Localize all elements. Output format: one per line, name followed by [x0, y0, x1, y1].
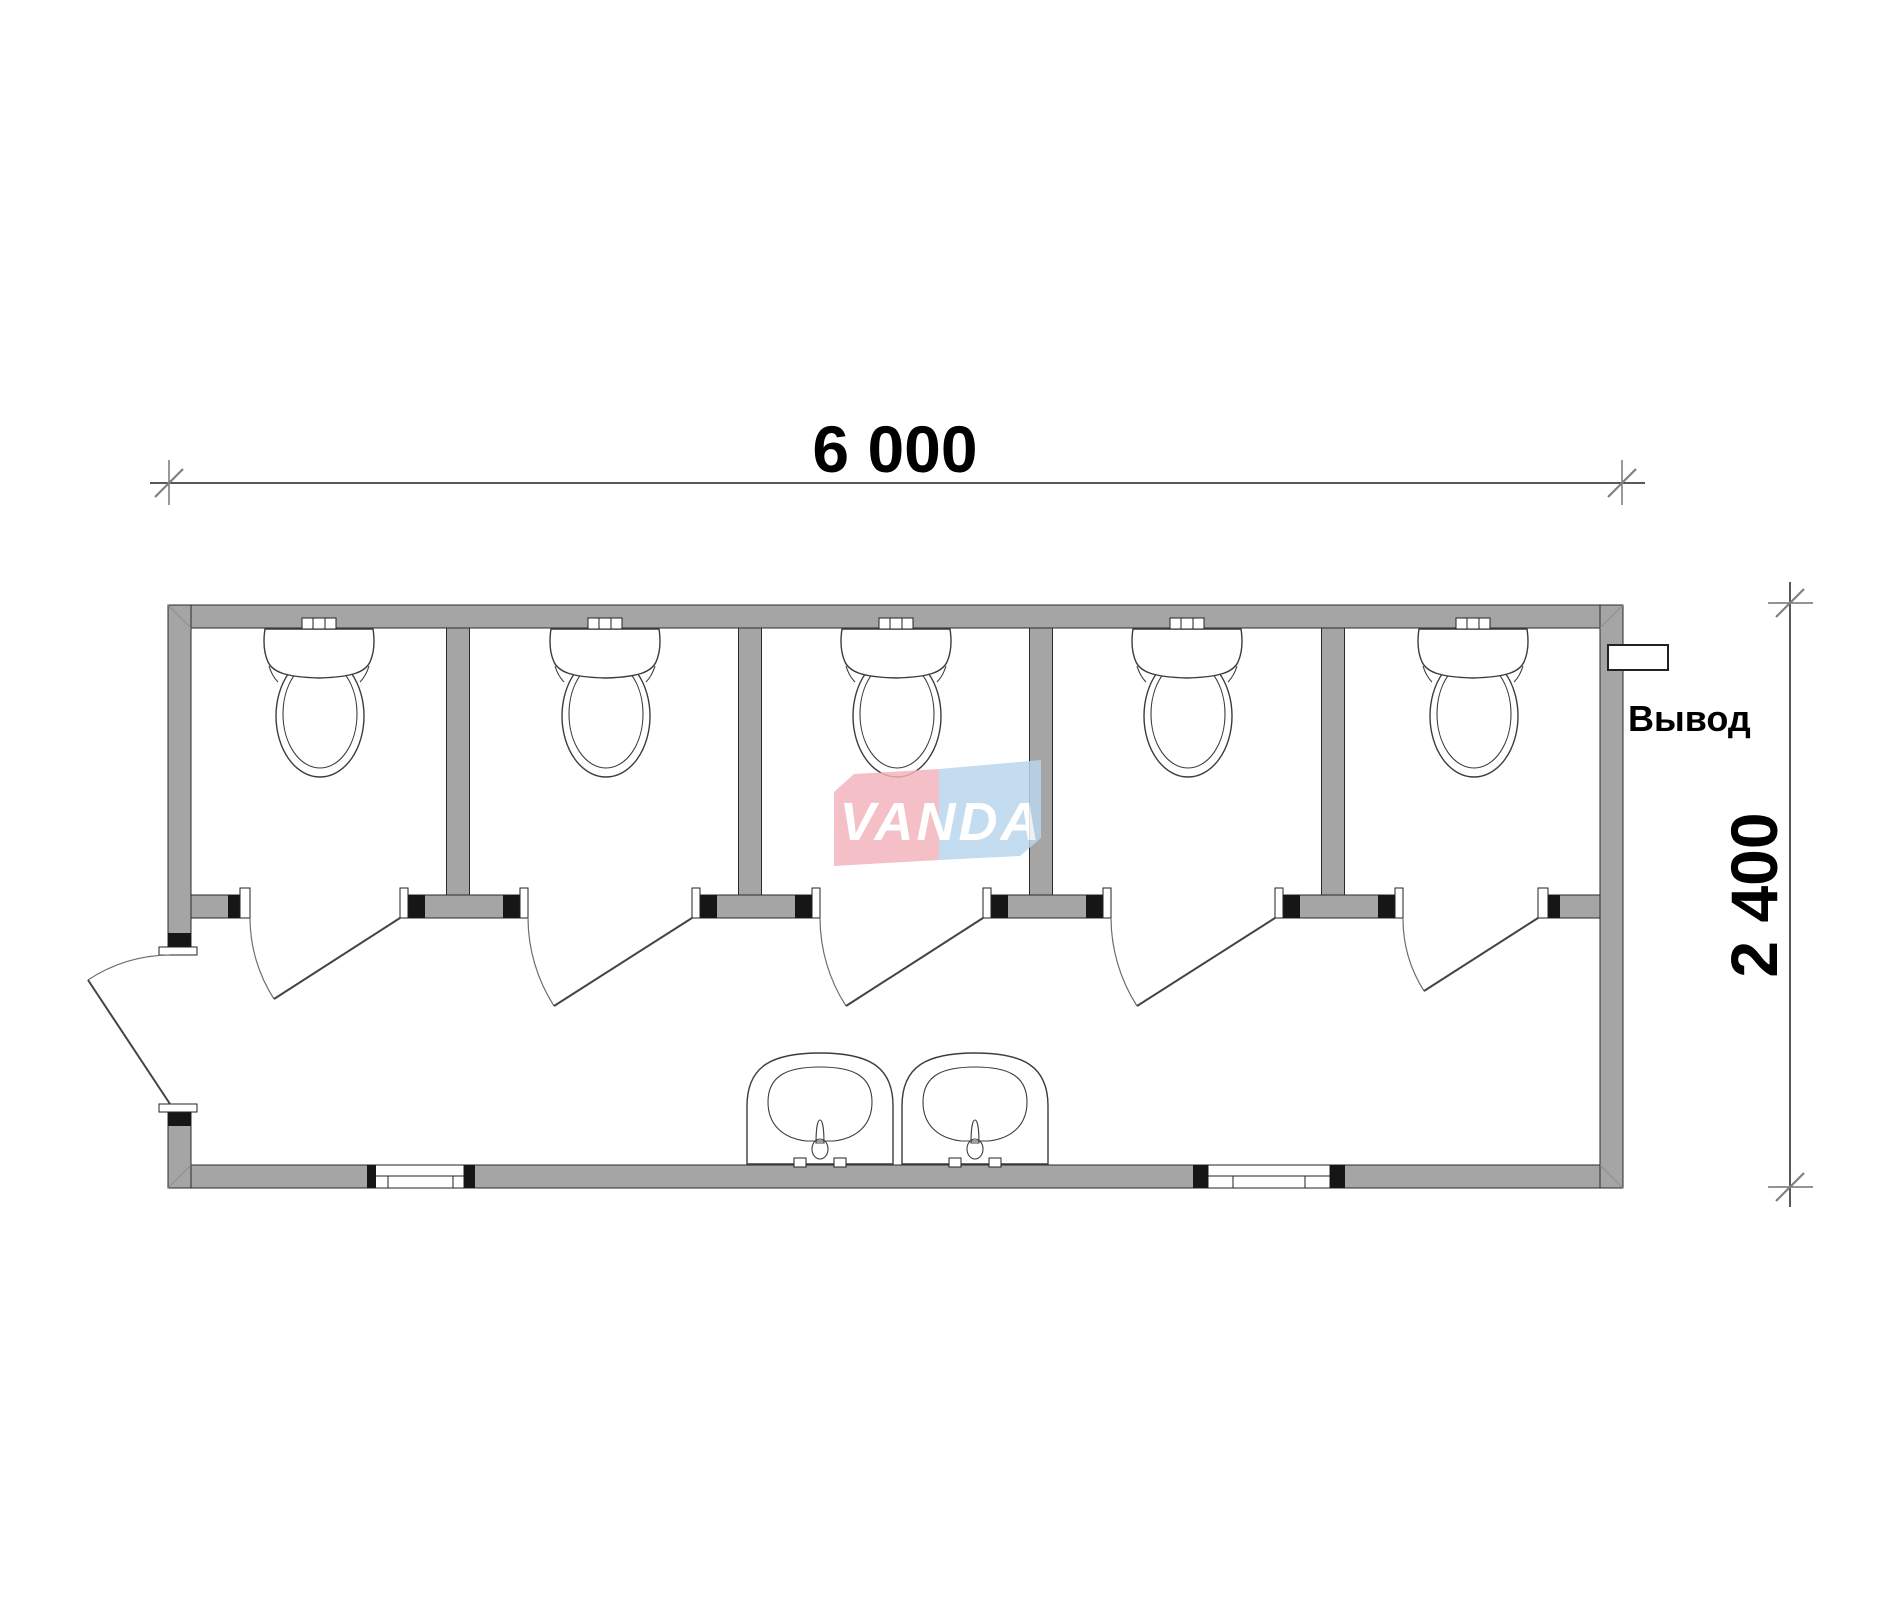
drain-outlet: Вывод [1608, 645, 1751, 739]
dimension-width: 6 000 [150, 412, 1645, 505]
toilet-icon-2 [550, 618, 660, 777]
toilet-icon-1 [264, 618, 374, 777]
sink-icon-2 [902, 1053, 1048, 1167]
partition-wall-2 [739, 628, 762, 918]
sinks [747, 1053, 1048, 1167]
partition-wall-4 [1322, 628, 1345, 918]
wall-left-upper [168, 605, 191, 947]
vanda-logo: VANDA [834, 760, 1043, 866]
partition-wall-1 [447, 628, 470, 918]
wall-right [1600, 605, 1623, 1188]
window-2 [1193, 1165, 1345, 1188]
window-1 [367, 1165, 475, 1188]
sink-icon-1 [747, 1053, 893, 1167]
toilet-icon-4 [1132, 618, 1242, 777]
stall-door-2 [528, 918, 692, 1006]
stall-door-5 [1403, 918, 1538, 991]
outlet-label: Вывод [1628, 698, 1751, 739]
stall-door-1 [250, 918, 400, 999]
toilet-icon-5 [1418, 618, 1528, 777]
entrance-door [88, 933, 197, 1126]
floor-plan-drawing: Вывод 6 000 2 400 VANDA [0, 0, 1899, 1617]
stall-doors [250, 918, 1538, 1006]
logo-text: VANDA [840, 792, 1043, 852]
toilet-icon-3 [841, 618, 951, 777]
height-dimension-label: 2 400 [1717, 812, 1791, 977]
dimension-height: 2 400 [1717, 582, 1813, 1207]
floor-plan-page: Вывод 6 000 2 400 VANDA [0, 0, 1899, 1617]
stall-door-3 [820, 918, 983, 1006]
width-dimension-label: 6 000 [812, 412, 977, 486]
stall-door-4 [1111, 918, 1275, 1006]
